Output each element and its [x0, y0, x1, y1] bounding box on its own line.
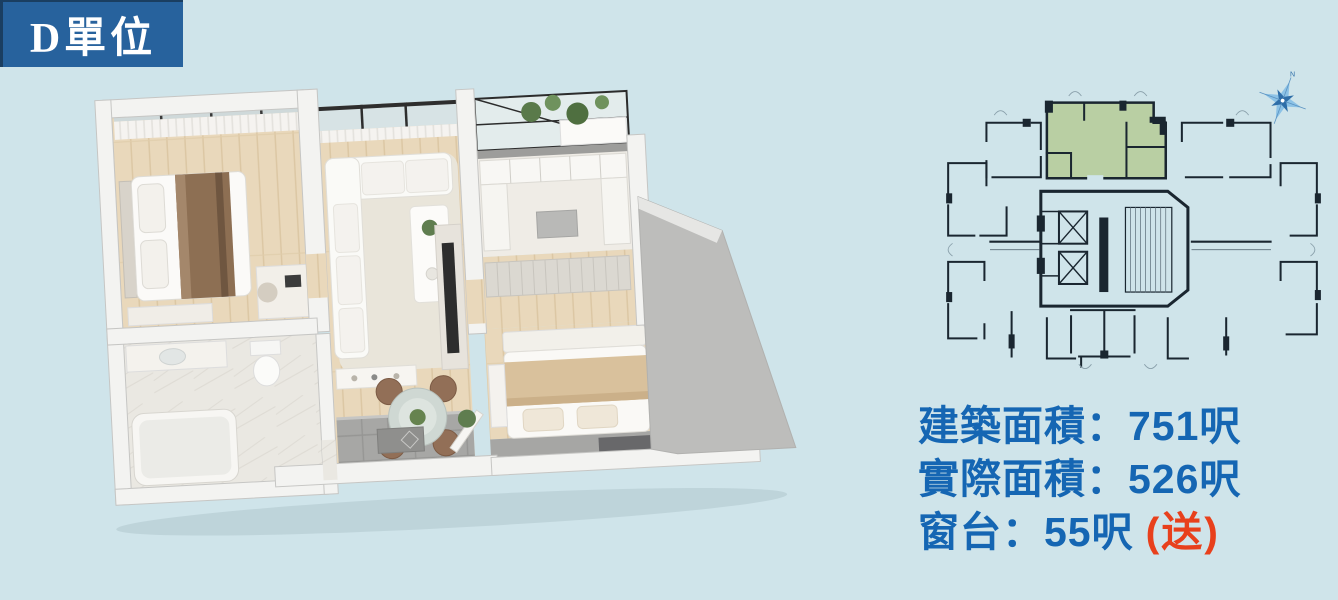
north-compass-icon: N: [1252, 63, 1317, 132]
area-specs: 建築面積：751呎 實際面積：526呎 窗台：55呎(送): [918, 400, 1253, 559]
core: [1037, 191, 1188, 306]
spec-line-gross-area: 建築面積：751呎: [918, 400, 1253, 453]
key-plan-svg: N: [928, 64, 1336, 372]
spec-value: 526呎: [1128, 456, 1241, 502]
bed-2: [503, 325, 651, 439]
spec-label: 實際面積: [918, 456, 1086, 502]
dresser: [128, 303, 213, 325]
unit-title-badge: D單位: [0, 0, 183, 67]
floorplan-3d: [70, 66, 792, 540]
spec-line-bay-window: 窗台：55呎(送): [918, 506, 1253, 559]
spec-separator: ：: [1086, 456, 1128, 502]
spec-separator: ：: [1086, 403, 1128, 449]
kitchen: [472, 91, 634, 251]
spec-value: 55呎: [1044, 509, 1134, 555]
svg-text:N: N: [1290, 71, 1295, 78]
wardrobe-corridor: [485, 255, 631, 297]
unit-d-highlight: [1047, 103, 1166, 179]
key-plan: N: [928, 64, 1336, 372]
spec-label: 窗台: [918, 509, 1002, 555]
spec-note: (送): [1146, 509, 1220, 555]
stairwell: [1125, 207, 1171, 292]
page: D單位: [0, 0, 1338, 600]
tall-right-wall: [638, 189, 796, 455]
spec-value: 751呎: [1128, 403, 1241, 449]
spec-line-net-area: 實際面積：526呎: [918, 453, 1253, 506]
floorplan-3d-svg: [70, 66, 792, 540]
appliance: [536, 210, 577, 238]
unit-title-label: D單位: [30, 4, 156, 65]
vanity-desk: [488, 364, 507, 427]
bed-1: [119, 171, 252, 302]
spec-label: 建築面積: [918, 403, 1086, 449]
spec-separator: ：: [1002, 509, 1044, 555]
